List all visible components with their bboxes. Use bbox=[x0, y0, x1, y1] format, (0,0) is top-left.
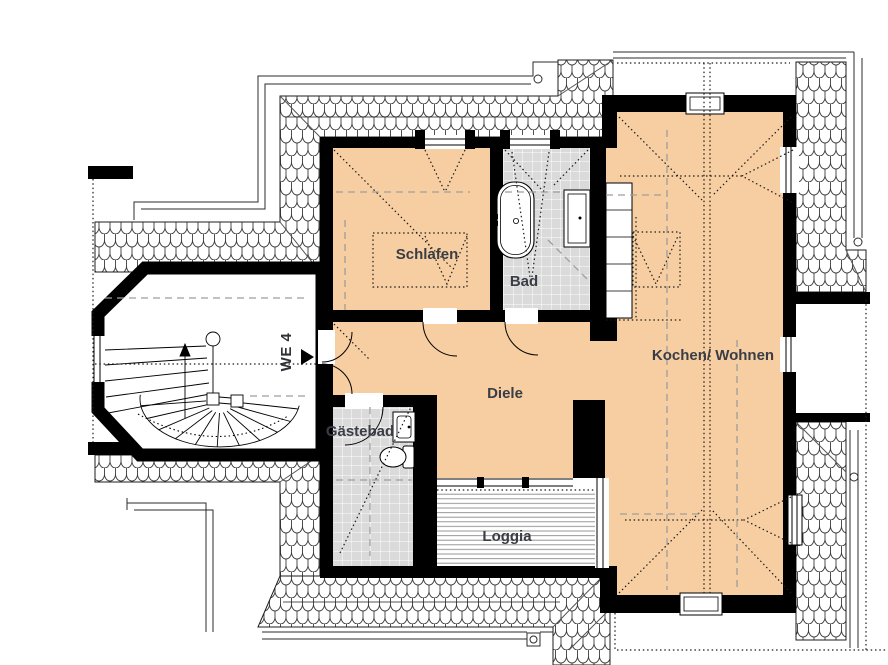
room-label-bad: Bad bbox=[510, 273, 538, 290]
loggia-side-window bbox=[595, 478, 609, 568]
schlafen-door-opening bbox=[423, 308, 457, 324]
floor-plan-page: Schlafen Bad Diele Kochen/ Wohnen Gästeb… bbox=[0, 0, 888, 665]
schlafen-dormer-window bbox=[425, 135, 465, 149]
unit-label-we4: WE 4 bbox=[278, 333, 295, 372]
room-label-kochen-wohnen: Kochen/ Wohnen bbox=[652, 347, 774, 364]
kitchen-counter bbox=[606, 183, 632, 318]
kochen-east-window-2 bbox=[780, 337, 799, 372]
room-kochen-floor-upper bbox=[617, 112, 783, 152]
chimney-top bbox=[686, 93, 724, 114]
washbasin-bad bbox=[564, 190, 590, 247]
floor-plan-drawing: Schlafen Bad Diele Kochen/ Wohnen Gästeb… bbox=[0, 0, 888, 665]
stairwell-window bbox=[89, 336, 107, 382]
hand-basin-gaestebad bbox=[393, 412, 415, 442]
room-label-diele: Diele bbox=[487, 385, 523, 402]
toilet bbox=[380, 446, 414, 468]
kochen-roof-window bbox=[788, 495, 802, 545]
gaestebad-door-opening bbox=[345, 393, 383, 409]
bad-dormer-window bbox=[510, 135, 550, 149]
chimney-bottom bbox=[680, 593, 722, 615]
bad-door-opening bbox=[505, 308, 538, 324]
room-label-gaestebad: Gästebad bbox=[326, 423, 394, 440]
roof-bottom-right-band bbox=[796, 422, 846, 640]
room-label-schlafen: Schlafen bbox=[396, 246, 459, 263]
entrance-door-opening bbox=[318, 330, 335, 364]
kochen-east-window-1 bbox=[780, 147, 799, 193]
room-label-loggia: Loggia bbox=[482, 528, 532, 545]
bathtub bbox=[491, 182, 534, 258]
